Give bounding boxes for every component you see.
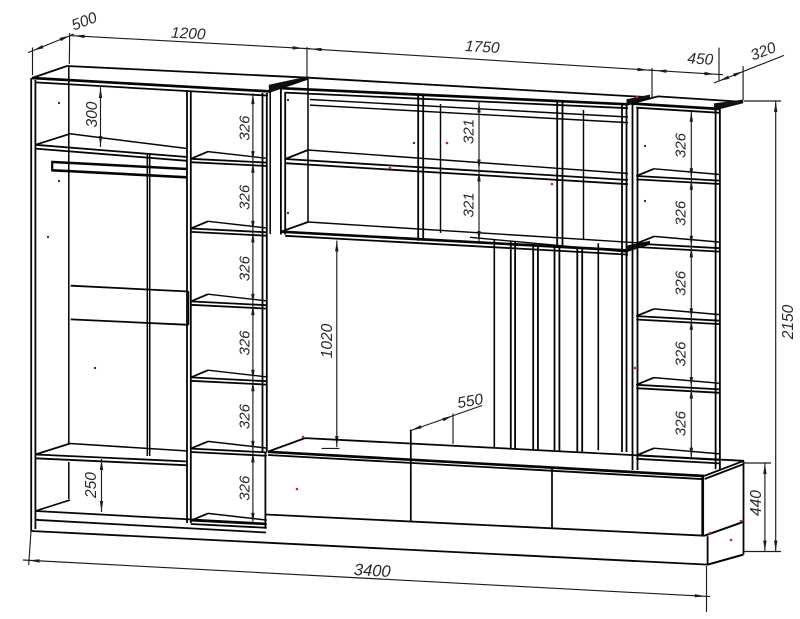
svg-text:1020: 1020 — [319, 323, 336, 358]
svg-text:321: 321 — [461, 119, 478, 144]
svg-text:321: 321 — [461, 192, 478, 217]
svg-text:326: 326 — [673, 341, 690, 367]
svg-text:3400: 3400 — [353, 561, 391, 581]
svg-text:250: 250 — [83, 472, 100, 499]
svg-text:2150: 2150 — [780, 304, 797, 340]
svg-text:326: 326 — [673, 270, 690, 296]
svg-text:326: 326 — [237, 475, 254, 501]
svg-text:300: 300 — [84, 101, 101, 127]
svg-text:326: 326 — [237, 403, 254, 429]
svg-text:326: 326 — [237, 330, 254, 356]
svg-text:440: 440 — [748, 490, 765, 516]
svg-text:1750: 1750 — [465, 38, 501, 57]
svg-text:450: 450 — [687, 50, 714, 69]
svg-text:1200: 1200 — [171, 25, 207, 44]
svg-text:326: 326 — [673, 200, 690, 226]
svg-text:326: 326 — [673, 132, 690, 158]
svg-text:326: 326 — [237, 255, 254, 281]
svg-text:326: 326 — [237, 115, 254, 141]
svg-text:326: 326 — [673, 410, 690, 436]
svg-text:326: 326 — [237, 184, 254, 210]
